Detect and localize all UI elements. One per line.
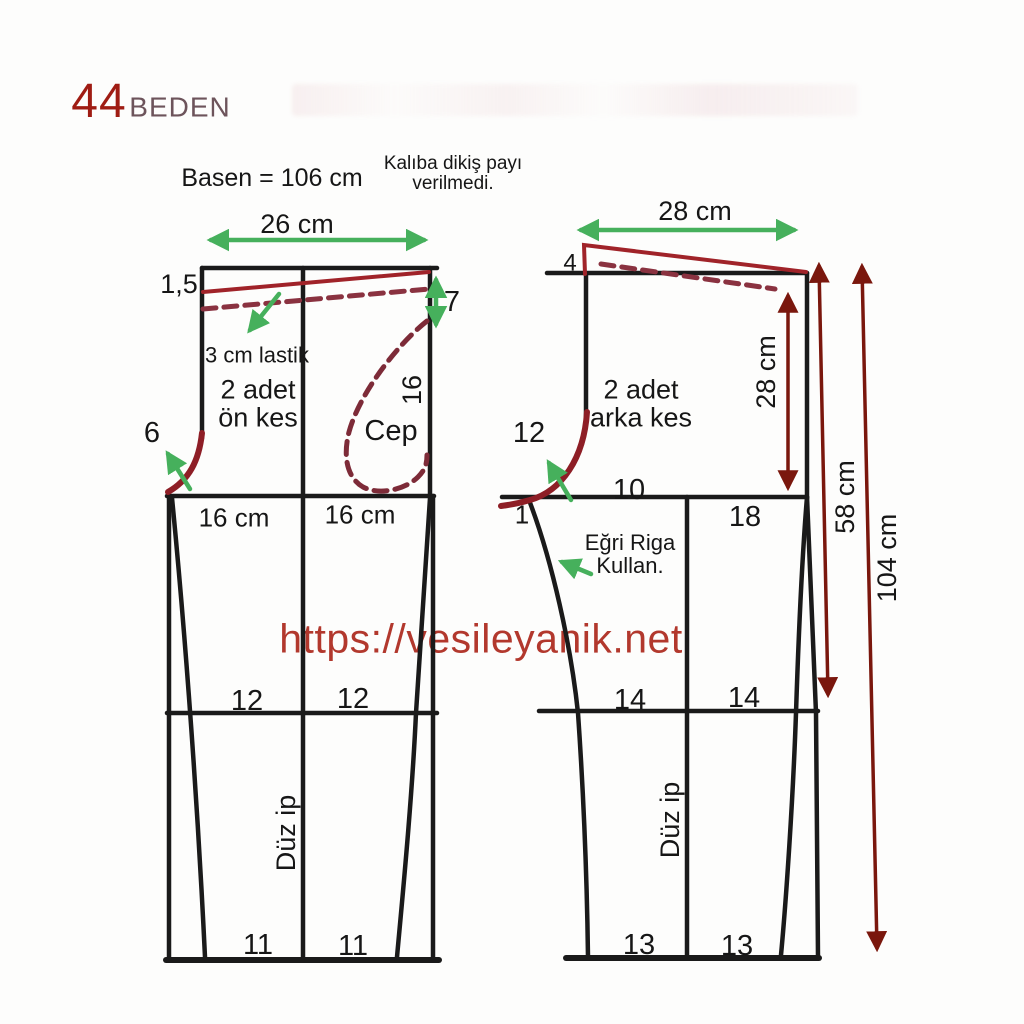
front-elastic-dashed-line: [203, 289, 429, 309]
back-waist-rise-line: [584, 245, 806, 274]
back-depth-label: 28 cm: [752, 335, 780, 409]
pocket-depth-label: 16: [398, 375, 426, 405]
ruler-note-line2: Kullan.: [585, 554, 675, 577]
back-leg-right-outer: [807, 497, 818, 957]
seam-note-line2: verilmedi.: [384, 174, 522, 194]
pocket-dashed-curve: [346, 321, 427, 491]
front-hip-left-label: 16 cm: [199, 504, 270, 531]
back-knee-right-label: 14: [728, 683, 760, 713]
back-hip-right-label: 18: [729, 502, 761, 532]
seam-note-line1: Kalıba dikiş payı: [384, 154, 522, 174]
front-width-label: 26 cm: [260, 210, 334, 238]
elastic-pointer-arrow: [250, 294, 279, 330]
ruler-note-line1: Eğri Riga: [585, 531, 675, 554]
front-leg-right-seam: [397, 498, 430, 957]
pocket-label: Cep: [364, 416, 417, 446]
back-grainline-label: Düz ip: [656, 782, 684, 859]
front-crotch-extension-label: 6: [144, 418, 160, 448]
front-hem-right-label: 11: [338, 931, 368, 961]
front-leg-left-seam: [172, 498, 205, 957]
ruler-note: Eğri Riga Kullan.: [585, 531, 675, 577]
front-red-lines: [168, 272, 429, 492]
back-cut-line1: 2 adet: [590, 376, 692, 404]
full-length-arrow: [862, 267, 877, 948]
front-knee-right-label: 12: [337, 684, 369, 714]
front-grainline-label: Düz ip: [272, 795, 300, 872]
back-hip-left-label: 10: [613, 475, 645, 505]
size-word: BEDEN: [129, 92, 230, 121]
full-length-label: 104 cm: [873, 514, 901, 603]
back-cut-line2: arka kes: [590, 404, 692, 432]
front-cut-line1: 2 adet: [218, 376, 298, 404]
front-waist-seam-line: [203, 272, 429, 292]
front-cut-note: 2 adet ön kes: [218, 376, 298, 433]
back-waist-dashed-line: [601, 264, 775, 289]
front-side-depth-label: 7: [444, 287, 460, 317]
back-width-label: 28 cm: [658, 197, 732, 225]
back-cut-note: 2 adet arka kes: [590, 376, 692, 433]
to-knee-length-label: 58 cm: [831, 460, 859, 534]
back-waist-rise-label: 4: [563, 250, 576, 275]
seam-allowance-note: Kalıba dikiş payı verilmedi.: [384, 154, 522, 194]
front-knee-left-label: 12: [231, 686, 263, 716]
back-crotch-point-label: 1: [515, 501, 529, 528]
front-hem-left-label: 11: [243, 930, 273, 960]
to-knee-length-arrow: [819, 266, 828, 694]
front-piece-outline: [166, 268, 439, 960]
front-hip-right-label: 16 cm: [325, 501, 396, 528]
back-crotch-extension-label: 12: [513, 418, 545, 448]
back-leg-right-seam: [781, 497, 807, 955]
front-waist-drop-label: 1,5: [160, 270, 198, 298]
back-hem-right-label: 13: [721, 931, 753, 961]
back-hem-left-label: 13: [623, 930, 655, 960]
elastic-note-label: 3 cm lastik: [205, 343, 309, 366]
back-knee-left-label: 14: [614, 685, 646, 715]
front-cut-line2: ön kes: [218, 404, 298, 432]
sewing-pattern-sheet: 44 BEDEN Basen = 106 cm Kalıba dikiş pay…: [0, 0, 1024, 1024]
hip-measure-note: Basen = 106 cm: [181, 165, 362, 191]
size-number: 44: [71, 77, 126, 127]
